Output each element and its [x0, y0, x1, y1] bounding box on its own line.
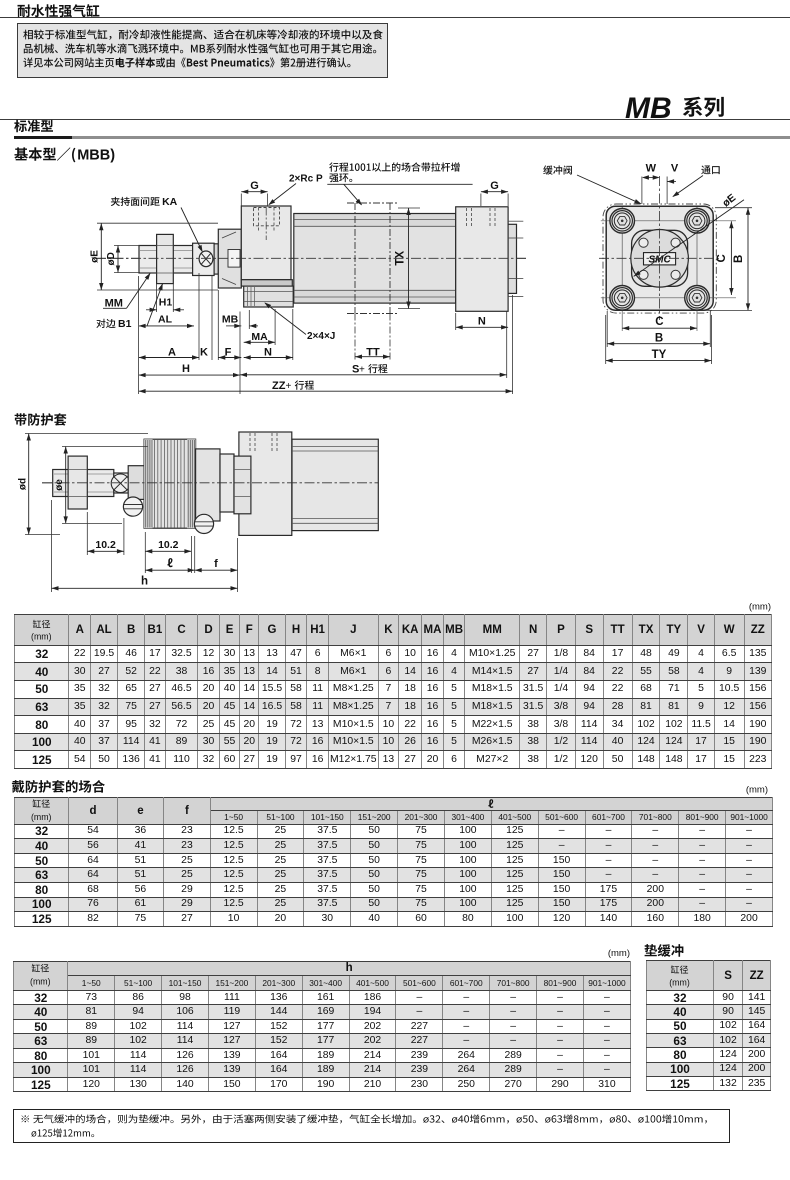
- svg-text:øE: øE: [90, 250, 101, 263]
- svg-text:MBB): MBB): [77, 148, 115, 164]
- svg-text:K: K: [200, 347, 208, 359]
- svg-text:h: h: [141, 576, 148, 588]
- svg-text:TX: TX: [395, 251, 407, 266]
- svg-text:C: C: [716, 254, 728, 262]
- svg-text:10.2: 10.2: [95, 539, 116, 551]
- svg-text:H: H: [182, 363, 190, 375]
- svg-text:MM: MM: [105, 298, 123, 310]
- svg-text:(mm): (mm): [608, 948, 630, 959]
- svg-text:TT: TT: [366, 347, 380, 359]
- svg-text:A: A: [168, 347, 176, 359]
- svg-text:+: +: [286, 381, 292, 392]
- svg-text:øD: øD: [106, 252, 117, 265]
- svg-text:SMC: SMC: [648, 255, 671, 266]
- svg-text:2×4×J: 2×4×J: [307, 331, 335, 342]
- svg-text:ZZ: ZZ: [272, 380, 286, 392]
- svg-text:f: f: [214, 558, 218, 570]
- svg-text:10.2: 10.2: [158, 539, 179, 551]
- svg-text:MA: MA: [251, 331, 268, 343]
- svg-text:G: G: [490, 180, 499, 192]
- svg-text:S: S: [352, 363, 359, 375]
- svg-text:TY: TY: [652, 349, 667, 361]
- svg-text:N: N: [264, 347, 272, 359]
- svg-text:(mm): (mm): [746, 785, 768, 796]
- svg-text:B: B: [655, 332, 663, 344]
- svg-text:C: C: [655, 316, 663, 328]
- svg-text:W: W: [646, 163, 657, 175]
- svg-text:MB: MB: [222, 314, 239, 326]
- svg-text:(mm): (mm): [749, 602, 771, 613]
- svg-text:AL: AL: [158, 314, 173, 326]
- svg-text:2×Rc P: 2×Rc P: [289, 173, 323, 184]
- svg-text:KA: KA: [162, 196, 178, 208]
- svg-text:G: G: [250, 180, 259, 192]
- svg-text:øE: øE: [720, 192, 738, 210]
- svg-text:N: N: [478, 316, 486, 328]
- svg-text:B1: B1: [118, 318, 132, 330]
- svg-text:øe: øe: [54, 479, 65, 491]
- svg-text:ød: ød: [18, 478, 29, 490]
- svg-text:+: +: [359, 364, 365, 375]
- svg-text:F: F: [225, 347, 232, 359]
- svg-text:V: V: [671, 163, 679, 175]
- svg-text:B: B: [733, 255, 745, 263]
- svg-text:H1: H1: [159, 297, 173, 309]
